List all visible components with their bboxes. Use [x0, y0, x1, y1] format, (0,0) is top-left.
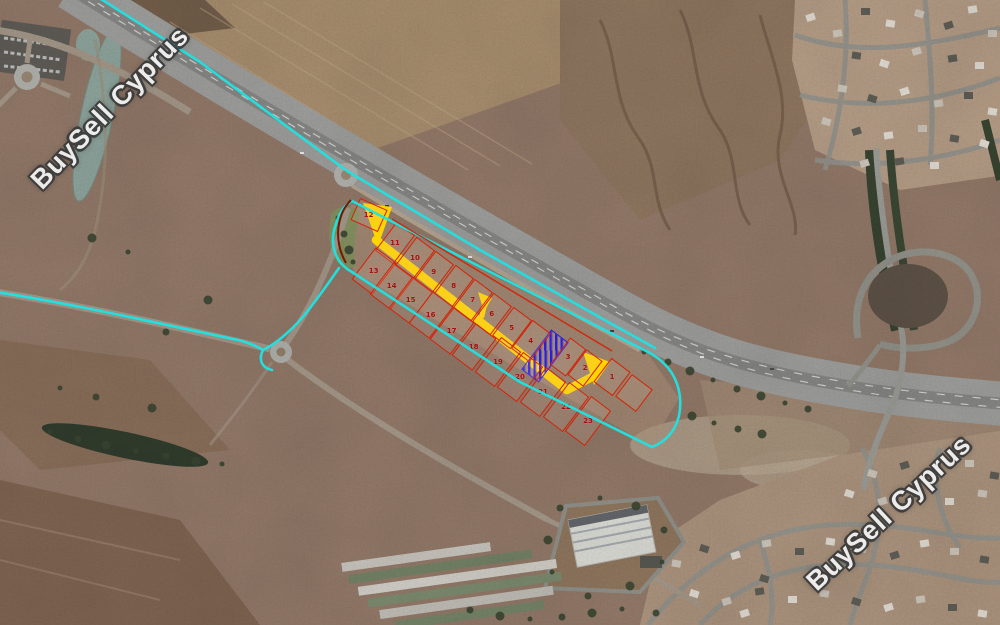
boundary-road-line: [0, 268, 339, 350]
boundary-parcel-line: [333, 201, 680, 447]
boundary-road-curl: [261, 350, 272, 370]
parcel-west-edge: [338, 200, 351, 263]
satellite-map-image: 1211109876543211314151617181920212223 Bu…: [0, 0, 1000, 625]
plot-band-northeast-edge: [392, 219, 612, 351]
